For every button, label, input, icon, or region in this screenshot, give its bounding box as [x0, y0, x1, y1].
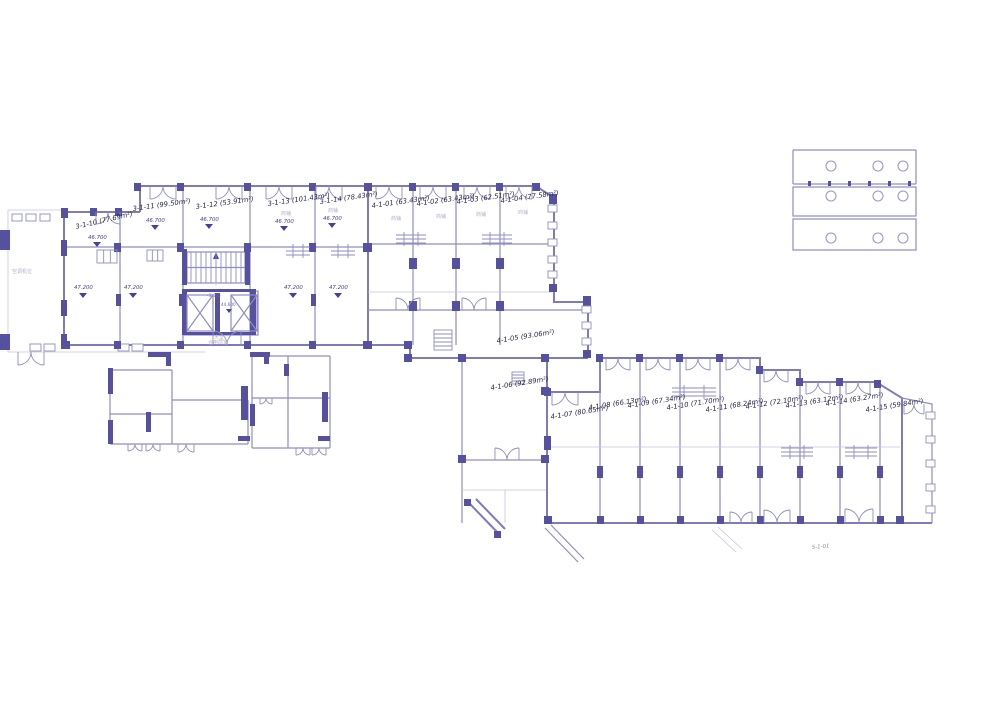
window-notch: [926, 506, 935, 513]
wall-pier: [494, 531, 501, 538]
shop-note: 商铺: [436, 213, 446, 220]
wall-pier: [245, 249, 250, 285]
shop-note: 商铺: [476, 211, 486, 218]
wall-pier: [114, 243, 121, 252]
wall-pier: [311, 294, 316, 306]
wall-pier: [0, 230, 10, 250]
wall-pier: [166, 352, 171, 366]
wall-pier: [583, 350, 591, 358]
wall-pier: [496, 258, 504, 269]
wall-pier: [61, 208, 68, 218]
wall-pier: [532, 183, 540, 191]
shop-note: 商铺: [281, 210, 291, 217]
elevation-46700: 46.700: [200, 217, 219, 223]
wall-pier: [116, 294, 121, 306]
wall-pier: [837, 516, 844, 524]
window-notch: [548, 256, 557, 263]
wall-pier: [264, 352, 269, 364]
elevation-46700: 46.700: [275, 219, 294, 225]
wall-pier: [549, 284, 557, 292]
wall-pier: [896, 516, 904, 524]
wall-pier: [797, 466, 803, 478]
window-notch: [926, 460, 935, 467]
wall-pier: [636, 354, 643, 362]
ac-unit-note: 空调机位: [12, 268, 32, 275]
wall-pier: [322, 392, 328, 422]
wall-pier: [250, 404, 255, 426]
window-notch: [926, 484, 935, 491]
wall-pier: [544, 388, 551, 396]
wall-pier: [544, 436, 551, 450]
wall-pier: [244, 183, 251, 191]
wall-pier: [637, 516, 644, 524]
wall-pier: [409, 183, 416, 191]
wall-pier: [837, 466, 843, 478]
wall-pier: [496, 183, 503, 191]
wall-pier: [877, 466, 883, 478]
wall-pier: [241, 386, 248, 420]
wall-pier: [0, 334, 10, 350]
window-notch: [926, 412, 935, 419]
wall-pier: [597, 516, 604, 524]
wall-pier: [458, 455, 466, 463]
ramp-tick: [888, 181, 891, 186]
wall-pier: [61, 240, 67, 256]
wall-pier: [108, 368, 113, 394]
wall-pier: [452, 258, 460, 269]
elevation-47200: 47.200: [284, 285, 303, 291]
window-notch: [582, 338, 591, 345]
wall-pier: [717, 466, 723, 478]
wall-pier: [452, 301, 460, 311]
elevation-46700: 46.700: [323, 216, 342, 222]
wall-pier: [182, 289, 256, 292]
wall-pier: [874, 380, 881, 388]
wall-pier: [877, 516, 884, 524]
wall-pier: [284, 364, 289, 376]
wall-pier: [583, 296, 591, 306]
window-notch: [926, 436, 935, 443]
vestibule-note: 合用前室: [208, 339, 228, 346]
wall-pier: [676, 354, 683, 362]
wall-pier: [757, 516, 764, 524]
wall-pier: [404, 354, 412, 362]
wall-pier: [757, 466, 763, 478]
wall-pier: [796, 378, 803, 386]
wall-pier: [541, 354, 549, 362]
wall-pier: [717, 516, 724, 524]
elevation-46700: 46.700: [146, 218, 165, 224]
wall-pier: [177, 183, 184, 191]
ramp-tick: [828, 181, 831, 186]
wall-pier: [677, 466, 683, 478]
wall-pier: [677, 516, 684, 524]
wall-pier: [134, 183, 141, 191]
wall-pier: [464, 499, 471, 506]
wall-pier: [409, 258, 417, 269]
wall-pier: [177, 341, 184, 349]
wall-pier: [318, 436, 330, 441]
shop-note: 商铺: [391, 215, 401, 222]
elevation-47200: 47.200: [124, 285, 143, 291]
wall-pier: [182, 249, 187, 285]
wall-pier: [363, 243, 372, 252]
window-notch: [548, 271, 557, 278]
wall-pier: [146, 412, 151, 432]
wall-pier: [404, 341, 412, 349]
window-notch: [548, 205, 557, 212]
floor-plan-page: 3-1-10 (77.69m²) 3-1-11 (99.50m²) 3-1-12…: [0, 0, 1000, 707]
wall-pier: [836, 378, 843, 386]
wall-pier: [61, 300, 67, 316]
wall-pier: [596, 354, 603, 362]
wall-pier: [238, 436, 250, 441]
window-notch: [582, 306, 591, 313]
ramp-tick: [808, 181, 811, 186]
wall-pier: [182, 291, 187, 335]
wall-pier: [309, 341, 316, 349]
wall-pier: [108, 420, 113, 444]
wall-pier: [544, 516, 552, 524]
wall-pier: [61, 341, 70, 349]
floor-plan-canvas: 3-1-10 (77.69m²) 3-1-11 (99.50m²) 3-1-12…: [0, 0, 1000, 707]
window-notch: [548, 239, 557, 246]
wall-pier: [716, 354, 723, 362]
wall-pier: [637, 466, 643, 478]
ramp-tick: [868, 181, 871, 186]
wall-pier: [244, 341, 251, 349]
wall-pier: [597, 466, 603, 478]
wall-pier: [215, 293, 220, 333]
elevation-46700: 46.700: [88, 235, 107, 241]
wall-pier: [309, 183, 316, 191]
wall-pier: [364, 183, 372, 191]
elevation-47200: 47.200: [329, 285, 348, 291]
wall-pier: [756, 366, 763, 374]
wall-pier: [363, 341, 372, 349]
elevation-minus-3450: -3.450: [207, 293, 221, 298]
wall-pier: [797, 516, 804, 524]
wall-pier: [458, 354, 466, 362]
wall-pier: [541, 455, 549, 463]
shop-note: 商铺: [328, 207, 338, 214]
shop-note: 商铺: [518, 209, 528, 216]
window-notch: [548, 222, 557, 229]
elevation-47200: 47.200: [74, 285, 93, 291]
elevation-44600: 44.600: [221, 302, 236, 307]
wall-pier: [114, 341, 121, 349]
ramp-tick: [908, 181, 911, 186]
wall-pier: [452, 183, 459, 191]
wall-pier: [309, 243, 316, 252]
ramp-tick: [848, 181, 851, 186]
wall-pier: [496, 301, 504, 311]
window-notch: [582, 322, 591, 329]
